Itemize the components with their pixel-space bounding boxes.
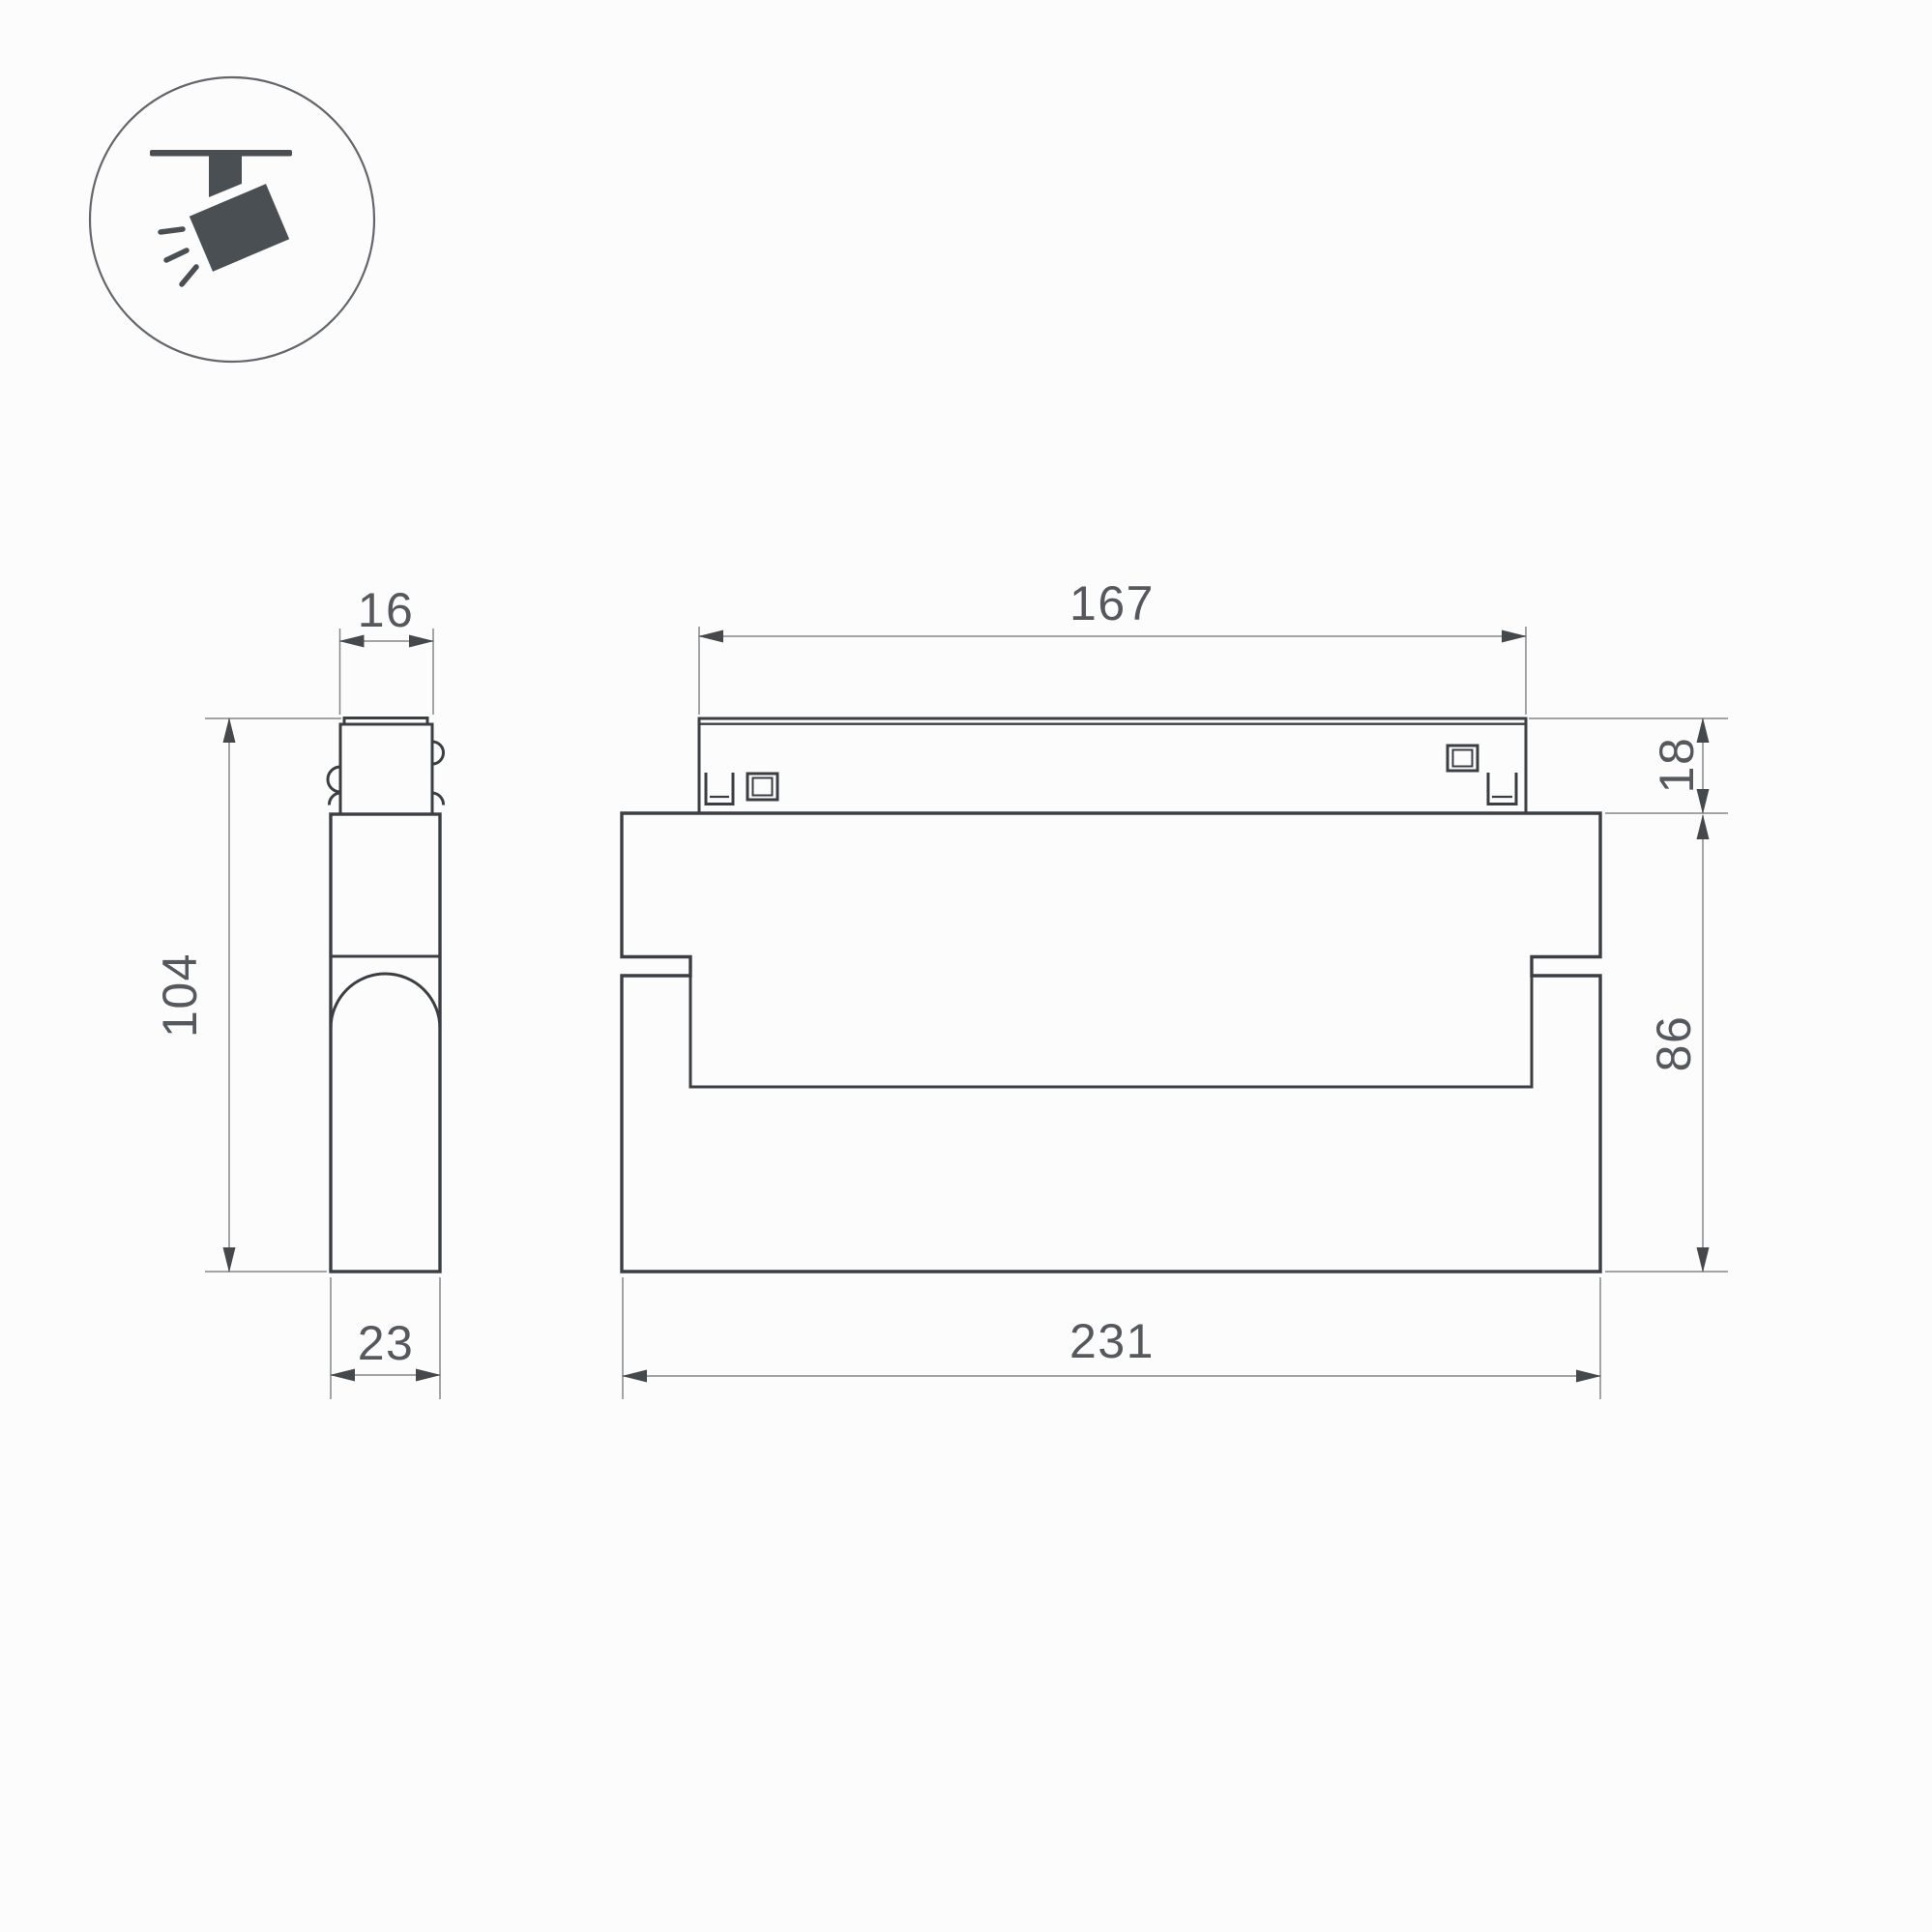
dim-label-231: 231 (1069, 1314, 1155, 1368)
front-track-adapter (699, 718, 1526, 813)
dim-label-167: 167 (1069, 576, 1155, 630)
dim-label-18: 18 (1650, 737, 1704, 794)
dim-label-16: 16 (358, 583, 415, 637)
side-stem-right-ear (432, 793, 444, 805)
dim-lines-104 (205, 718, 341, 1272)
side-stem-right-lug (432, 742, 444, 764)
track-spotlight-icon (90, 77, 374, 362)
dim-label-104: 104 (153, 952, 207, 1038)
front-clip-left-square-inner (753, 778, 773, 796)
front-clip-right-u (1488, 773, 1516, 805)
icon-lamp-head (190, 184, 289, 272)
side-stem-left-ear (329, 793, 340, 805)
dim-lines-16 (340, 629, 434, 715)
dim-label-23: 23 (358, 1316, 415, 1370)
front-body (622, 813, 1600, 1272)
dimension-drawing: 16 104 23 167 18 86 231 (0, 0, 1932, 1932)
dim-label-86: 86 (1647, 1015, 1701, 1072)
side-stem (340, 724, 432, 814)
side-fold-arch (331, 974, 440, 1028)
side-view (328, 718, 444, 1273)
front-clip-right-square-inner (1453, 750, 1473, 767)
front-view (622, 718, 1600, 1272)
icon-light-rays (161, 229, 196, 284)
front-fold-panel (690, 957, 1532, 1088)
front-clip-left-u (706, 773, 733, 805)
side-body (331, 814, 440, 1272)
icon-stem (209, 153, 242, 197)
drawing-canvas: 16 104 23 167 18 86 231 (0, 0, 1932, 1932)
dim-lines-167 (699, 627, 1526, 715)
side-stem-left-lug (328, 767, 340, 792)
